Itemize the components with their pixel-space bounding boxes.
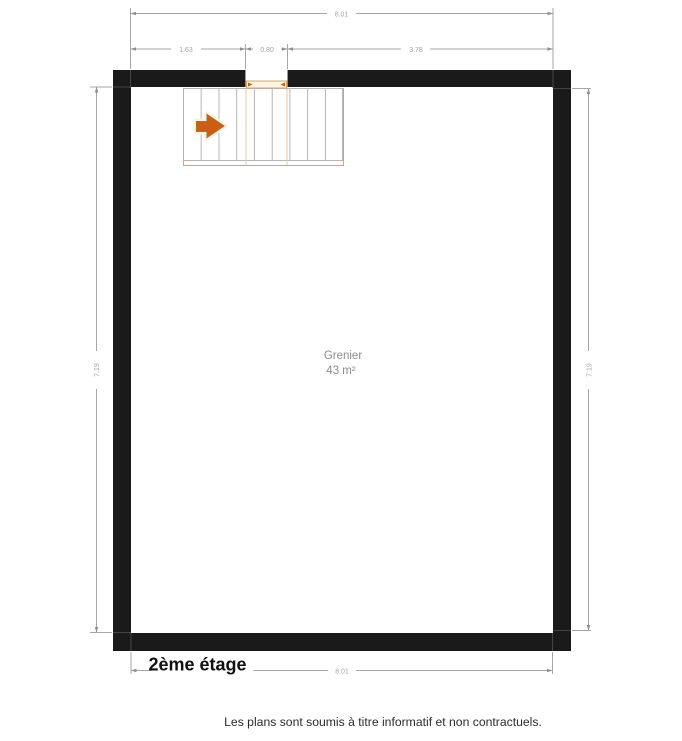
svg-text:8.01: 8.01 — [335, 669, 349, 676]
svg-text:43 m²: 43 m² — [326, 365, 356, 377]
svg-text:0.80: 0.80 — [260, 47, 274, 54]
svg-text:8.01: 8.01 — [335, 12, 349, 19]
svg-text:Les plans sont soumis à titre: Les plans sont soumis à titre informatif… — [224, 715, 542, 729]
svg-text:1.63: 1.63 — [179, 47, 193, 54]
svg-text:7.19: 7.19 — [587, 363, 594, 377]
svg-text:7.19: 7.19 — [94, 363, 101, 377]
svg-text:2ème étage: 2ème étage — [149, 655, 247, 675]
svg-text:Grenier: Grenier — [324, 350, 363, 362]
svg-text:3.78: 3.78 — [409, 47, 423, 54]
